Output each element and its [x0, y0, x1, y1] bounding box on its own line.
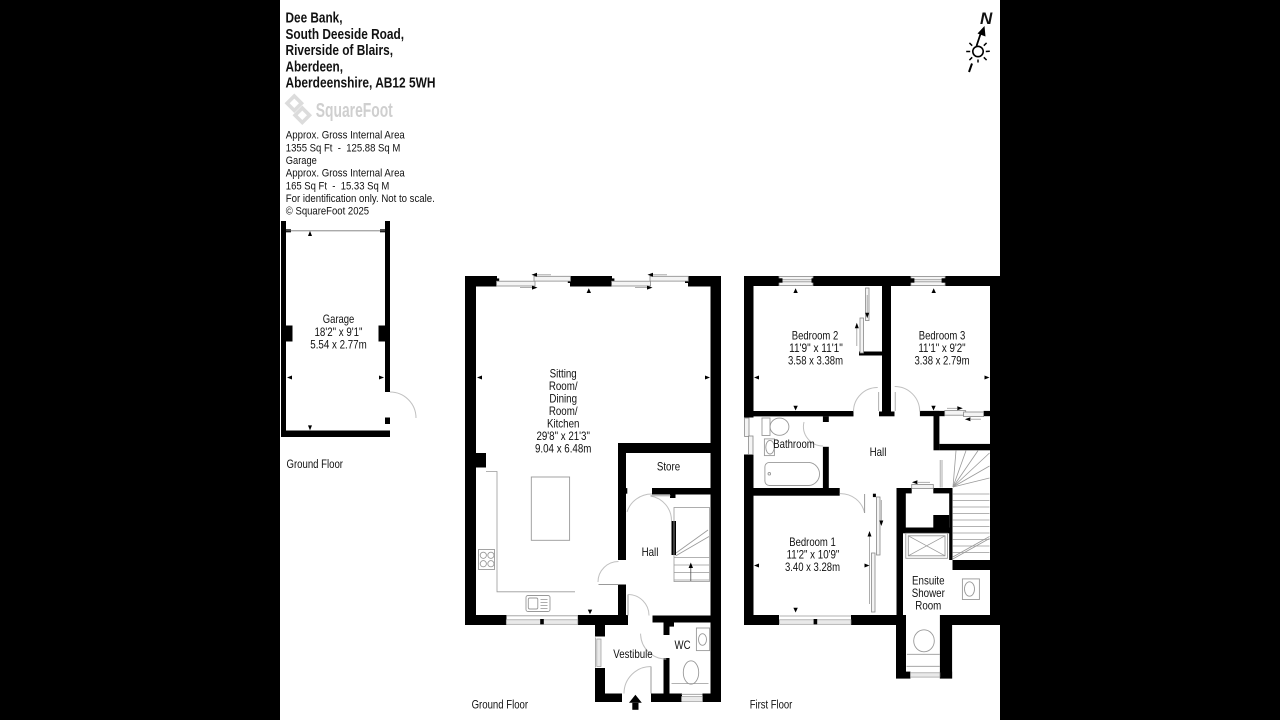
svg-text:Ground Floor: Ground Floor	[287, 457, 344, 471]
svg-text:Vestibule: Vestibule	[613, 647, 653, 661]
svg-text:Approx. Gross Internal Area: Approx. Gross Internal Area	[286, 168, 406, 180]
svg-text:South Deeside Road,: South Deeside Road,	[286, 27, 405, 43]
svg-text:Garage: Garage	[286, 155, 317, 167]
svg-text:Hall: Hall	[870, 445, 887, 459]
svg-text:© SquareFoot 2025: © SquareFoot 2025	[286, 206, 369, 218]
svg-text:9.04 x 6.48m: 9.04 x 6.48m	[535, 441, 591, 455]
svg-text:Ground Floor: Ground Floor	[472, 697, 528, 711]
svg-text:Store: Store	[657, 459, 681, 473]
svg-text:SquareFoot: SquareFoot	[316, 100, 393, 122]
svg-text:1355 Sq Ft - 125.88 Sq M: 1355 Sq Ft - 125.88 Sq M	[286, 142, 401, 154]
svg-text:Hall: Hall	[642, 545, 659, 559]
svg-text:3.38 x 2.79m: 3.38 x 2.79m	[915, 354, 970, 368]
svg-text:Room: Room	[915, 599, 941, 613]
svg-text:WC: WC	[675, 638, 691, 652]
svg-text:3.58 x 3.38m: 3.58 x 3.38m	[788, 354, 843, 368]
svg-text:For identification only. Not t: For identification only. Not to scale.	[286, 193, 435, 205]
svg-text:Aberdeen,: Aberdeen,	[286, 59, 344, 75]
svg-text:3.40 x 3.28m: 3.40 x 3.28m	[785, 560, 840, 574]
svg-text:Garage: Garage	[323, 312, 355, 326]
svg-text:Aberdeenshire, AB12 5WH: Aberdeenshire, AB12 5WH	[286, 76, 436, 92]
svg-text:Bathroom: Bathroom	[773, 437, 815, 451]
svg-text:First Floor: First Floor	[750, 697, 793, 711]
svg-text:N: N	[980, 9, 993, 28]
svg-text:Approx. Gross Internal Area: Approx. Gross Internal Area	[286, 130, 406, 142]
svg-text:165 Sq Ft - 15.33 Sq M: 165 Sq Ft - 15.33 Sq M	[286, 180, 390, 192]
svg-text:Dee Bank,: Dee Bank,	[286, 11, 343, 27]
svg-text:Riverside of Blairs,: Riverside of Blairs,	[286, 43, 394, 59]
svg-text:5.54 x 2.77m: 5.54 x 2.77m	[310, 337, 366, 351]
